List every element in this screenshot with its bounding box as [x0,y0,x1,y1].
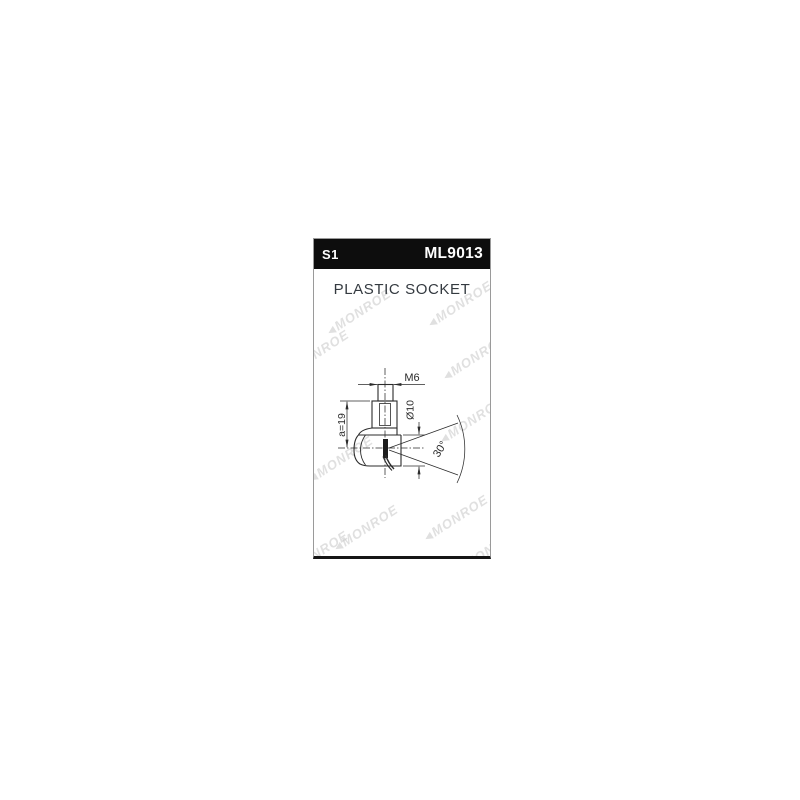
angle-dimension-label: 30° [431,439,450,459]
socket-cavity-arc [361,435,366,465]
header-bar: S1 ML9013 [314,239,490,269]
ball-pin-tail [386,455,395,469]
cone-lower-line [389,450,458,475]
thread-dimension-label: M6 [404,372,419,384]
diameter-dimension-label: Ø10 [405,400,417,420]
product-card: ◀MONROE ◀MONROE ◀MONROE ◀MONROE ◀MONROE … [313,238,491,559]
product-title: PLASTIC SOCKET [314,281,490,298]
size-code: S1 [322,247,339,262]
part-number: ML9013 [424,245,483,263]
angle-arc [457,415,465,483]
page: ◀MONROE ◀MONROE ◀MONROE ◀MONROE ◀MONROE … [0,0,800,800]
length-dimension-label: a=19 [336,413,348,437]
boss-outline [372,401,397,428]
stud-outline [378,385,393,402]
